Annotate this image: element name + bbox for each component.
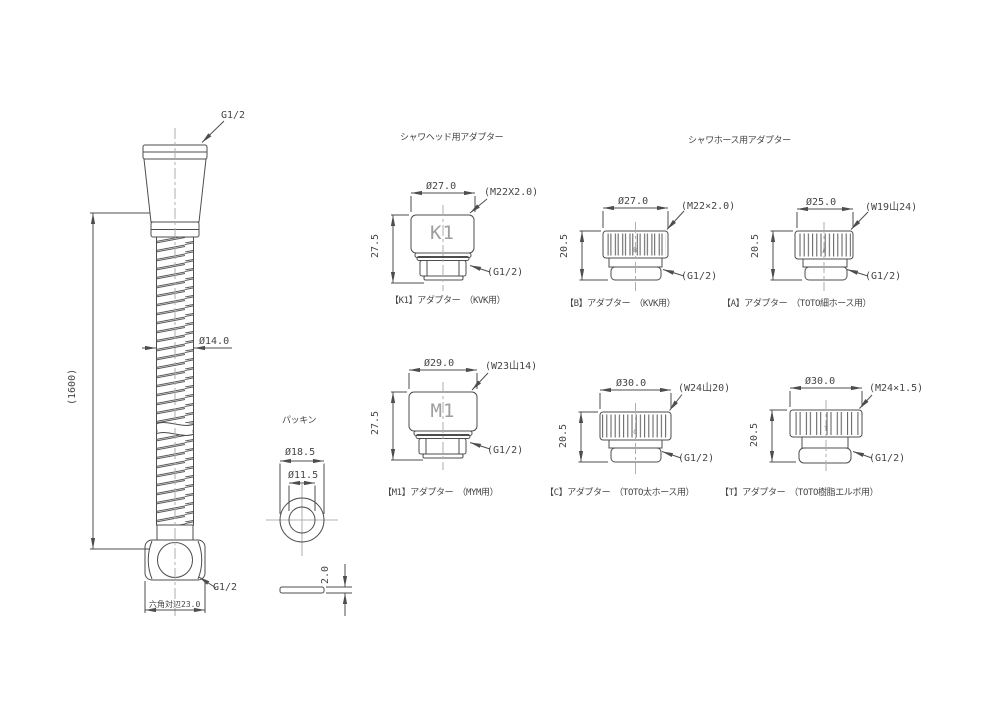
c-outlet-label: (G1/2) (678, 453, 714, 465)
c-dia-label: Ø30.0 (616, 378, 646, 390)
a-height-label: 20.5 (750, 234, 762, 258)
k1-body-label: K1 (411, 222, 474, 244)
packing-title: パッキン (282, 415, 316, 427)
m1-caption: 【M1】アダプター （MYM用） (383, 487, 498, 499)
hose-outer-dia-label: Ø14.0 (199, 336, 229, 348)
a-outlet-label: (G1/2) (865, 271, 901, 283)
b-thread-label: (M22×2.0) (681, 201, 735, 213)
c-thread-label: (W24山20) (678, 383, 730, 395)
k1-outlet-label: (G1/2) (487, 267, 523, 279)
k1-caption: 【K1】アダプター （KVK用） (390, 295, 505, 307)
m1-outlet-label: (G1/2) (487, 445, 523, 457)
k1-thread-label: (M22X2.0) (484, 187, 538, 199)
hose-hex-flats-label: 六角対辺23.0 (149, 600, 200, 610)
c-body-mark: C (627, 430, 643, 436)
m1-height-label: 27.5 (370, 411, 382, 435)
t-caption: 【T】アダプター （TOTO樹脂エルボ用） (720, 487, 878, 499)
a-body-mark: A (816, 249, 832, 255)
drawing-sheet: シャワヘッド用アダプター シャワホース用アダプター G1/2 Ø14.0 (16… (0, 0, 1000, 706)
hose-linework (90, 121, 232, 616)
packing-linework (266, 461, 352, 616)
m1-body-label: M1 (409, 400, 477, 422)
m1-dia-label: Ø29.0 (424, 358, 454, 370)
b-outlet-label: (G1/2) (681, 271, 717, 283)
hose-bottom-thread-label: G1/2 (213, 582, 237, 594)
t-dia-label: Ø30.0 (805, 376, 835, 388)
section-title-shower-head-adapter: シャワヘッド用アダプター (400, 132, 503, 144)
t-outlet-label: (G1/2) (869, 453, 905, 465)
m1-thread-label: (W23山14) (485, 361, 537, 373)
a-caption: 【A】アダプター （TOTO細ホース用） (722, 298, 871, 310)
hose-top-thread-label: G1/2 (221, 110, 245, 122)
k1-height-label: 27.5 (370, 234, 382, 258)
b-dia-label: Ø27.0 (618, 196, 648, 208)
t-height-label: 20.5 (749, 423, 761, 447)
hose-length-label: (1600) (67, 369, 79, 405)
c-height-label: 20.5 (558, 424, 570, 448)
c-caption: 【C】アダプター （TOTO太ホース用） (545, 487, 694, 499)
packing-thickness-label: 2.0 (320, 566, 332, 584)
b-body-mark: B (627, 248, 643, 254)
b-caption: 【B】アダプター （KVK用） (565, 298, 675, 310)
section-title-shower-hose-adapter: シャワホース用アダプター (688, 135, 791, 147)
packing-outer-dia-label: Ø18.5 (285, 447, 315, 459)
k1-dia-label: Ø27.0 (426, 181, 456, 193)
t-thread-label: (M24×1.5) (869, 383, 923, 395)
t-body-mark: T (818, 427, 834, 433)
a-dia-label: Ø25.0 (806, 197, 836, 209)
packing-inner-dia-label: Ø11.5 (288, 470, 318, 482)
a-thread-label: (W19山24) (865, 202, 917, 214)
b-height-label: 20.5 (559, 234, 571, 258)
